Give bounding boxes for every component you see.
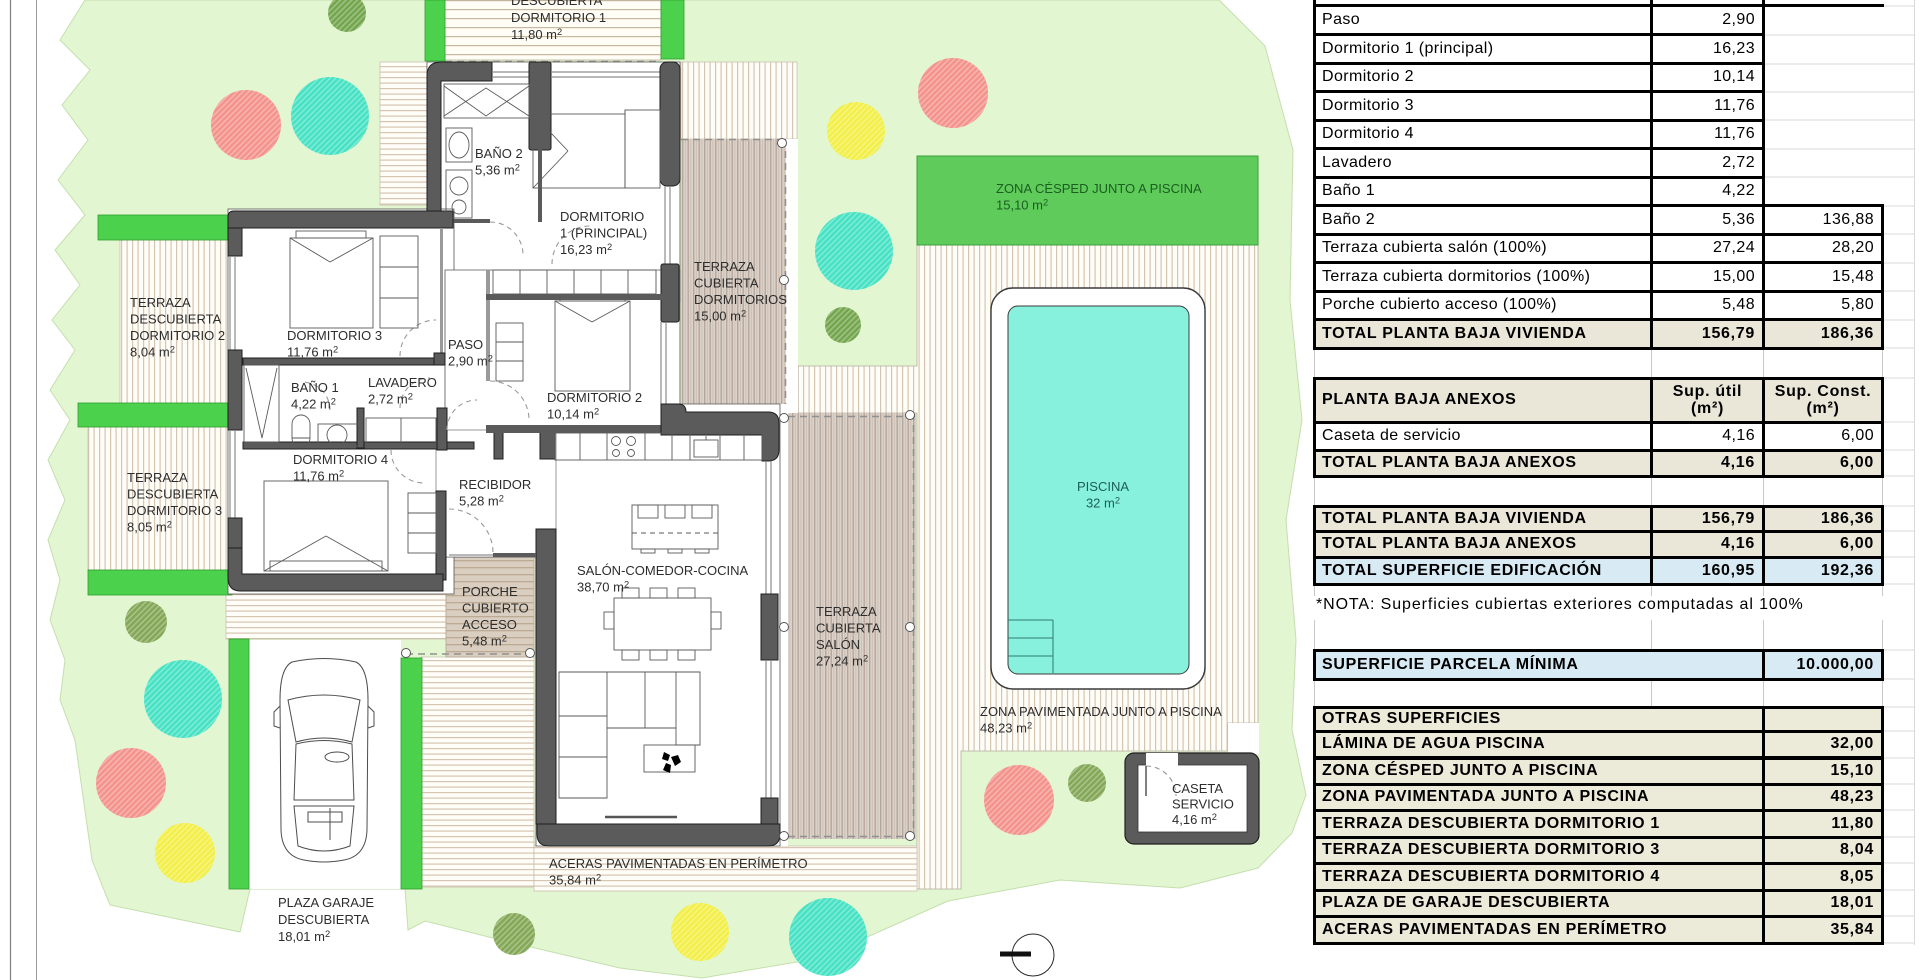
svg-text:38,70 m2: 38,70 m2 [577,580,629,595]
svg-text:2,72 m2: 2,72 m2 [368,392,413,407]
svg-text:48,23 m2: 48,23 m2 [980,721,1032,736]
svg-text:4,22 m2: 4,22 m2 [291,397,336,412]
svg-text:BAÑO 1: BAÑO 1 [291,380,339,395]
svg-text:DORMITORIO 2: DORMITORIO 2 [130,328,225,343]
svg-text:ZONA CÉSPED JUNTO A PISCINA: ZONA CÉSPED JUNTO A PISCINA [996,181,1202,196]
svg-text:DESCUBIERTA: DESCUBIERTA [511,0,603,8]
svg-text:ACERAS PAVIMENTADAS EN PERÍMET: ACERAS PAVIMENTADAS EN PERÍMETRO [549,856,808,871]
svg-text:11,76 m2: 11,76 m2 [287,345,338,360]
svg-text:DORMITORIO 4: DORMITORIO 4 [293,452,388,467]
svg-text:ACCESO: ACCESO [462,617,517,632]
svg-text:TERRAZA: TERRAZA [130,295,191,310]
svg-text:DORMITORIO 1: DORMITORIO 1 [511,10,606,25]
svg-text:11,80 m2: 11,80 m2 [511,27,562,42]
svg-text:11,76 m2: 11,76 m2 [293,469,344,484]
svg-text:ZONA PAVIMENTADA JUNTO A PISCI: ZONA PAVIMENTADA JUNTO A PISCINA [980,704,1222,719]
svg-text:LAVADERO: LAVADERO [368,375,437,390]
svg-text:CUBIERTA: CUBIERTA [694,276,759,291]
svg-text:TERRAZA: TERRAZA [694,259,755,274]
svg-text:5,36 m2: 5,36 m2 [475,163,520,178]
svg-text:DORMITORIO 2: DORMITORIO 2 [547,390,642,405]
svg-text:DESCUBIERTA: DESCUBIERTA [127,487,219,502]
svg-text:CUBIERTA: CUBIERTA [816,621,881,636]
svg-text:27,24 m2: 27,24 m2 [816,654,868,669]
svg-text:SALÓN-COMEDOR-COCINA: SALÓN-COMEDOR-COCINA [577,563,749,578]
svg-text:1 (PRINCIPAL): 1 (PRINCIPAL) [560,226,647,241]
svg-text:TERRAZA: TERRAZA [127,470,188,485]
svg-text:PLAZA GARAJE: PLAZA GARAJE [278,895,374,910]
svg-text:TERRAZA: TERRAZA [816,604,877,619]
svg-text:DORMITORIO 3: DORMITORIO 3 [127,503,222,518]
svg-text:10,14 m2: 10,14 m2 [547,407,599,422]
svg-text:DESCUBIERTA: DESCUBIERTA [130,312,222,327]
svg-text:RECIBIDOR: RECIBIDOR [459,477,531,492]
svg-text:PASO: PASO [448,337,483,352]
svg-text:15,10 m2: 15,10 m2 [996,198,1048,213]
svg-text:DORMITORIOS: DORMITORIOS [694,292,787,307]
svg-text:PORCHE: PORCHE [462,584,518,599]
svg-text:16,23 m2: 16,23 m2 [560,242,612,257]
svg-text:5,28 m2: 5,28 m2 [459,494,504,509]
svg-text:DORMITORIO: DORMITORIO [560,209,644,224]
svg-text:8,05 m2: 8,05 m2 [127,520,172,535]
svg-text:CASETA: CASETA [1172,781,1223,796]
svg-text:PISCINA: PISCINA [1077,479,1129,494]
svg-text:DESCUBIERTA: DESCUBIERTA [278,912,370,927]
svg-text:CUBIERTO: CUBIERTO [462,601,529,616]
svg-text:SERVICIO: SERVICIO [1172,797,1234,812]
svg-text:2,90 m2: 2,90 m2 [448,354,493,369]
svg-text:4,16 m2: 4,16 m2 [1172,812,1217,827]
svg-text:15,00 m2: 15,00 m2 [694,309,746,324]
svg-text:5,48 m2: 5,48 m2 [462,634,507,649]
svg-text:35,84 m2: 35,84 m2 [549,873,601,888]
svg-text:BAÑO 2: BAÑO 2 [475,146,523,161]
svg-text:DORMITORIO 3: DORMITORIO 3 [287,328,382,343]
svg-text:SALÓN: SALÓN [816,637,860,652]
svg-text:8,04 m2: 8,04 m2 [130,345,175,360]
svg-text:18,01 m2: 18,01 m2 [278,929,330,944]
